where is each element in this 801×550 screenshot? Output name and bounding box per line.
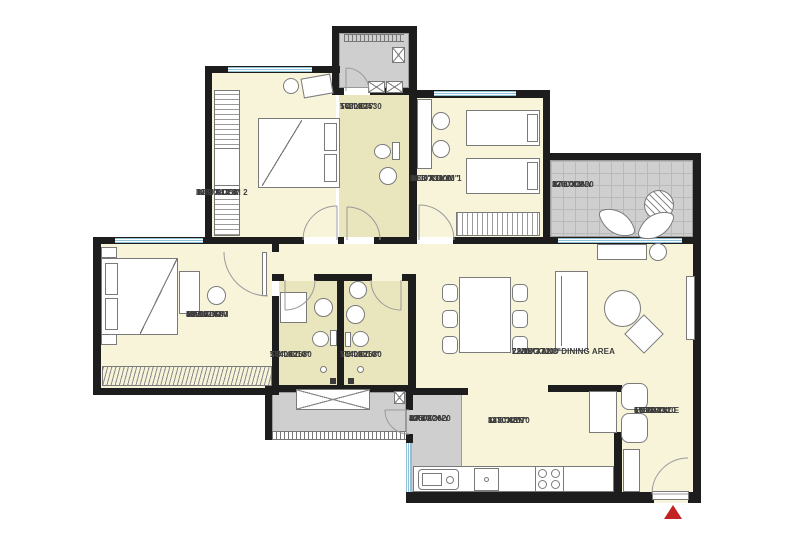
room-dim-ft: 10'9"X14'3": [196, 188, 241, 198]
room-dim-ft: 5'4"X8'4": [340, 102, 375, 112]
room-dim-ft: 4'X8'6": [409, 414, 436, 424]
room-dim-ft: 12'6"X6': [552, 180, 584, 190]
door-arcs: [0, 0, 801, 550]
room-dim-ft: 12'6"X8'9": [488, 416, 528, 426]
room-dim-ft: 10'6"X11'10": [410, 174, 459, 184]
room-dim-ft: 14'X12'6": [186, 310, 222, 320]
room-dim-ft: 5'5"X8'10": [340, 350, 380, 360]
floor-plan: BED ROOM 2 3280X4350 10'9"X14'3" TOILET …: [0, 0, 801, 550]
room-dim-ft: 23'12"X12'3": [512, 347, 561, 357]
room-dim-ft: 6'5"X9'3": [634, 406, 669, 416]
room-dim-ft: 5'5"X8'10": [270, 350, 310, 360]
